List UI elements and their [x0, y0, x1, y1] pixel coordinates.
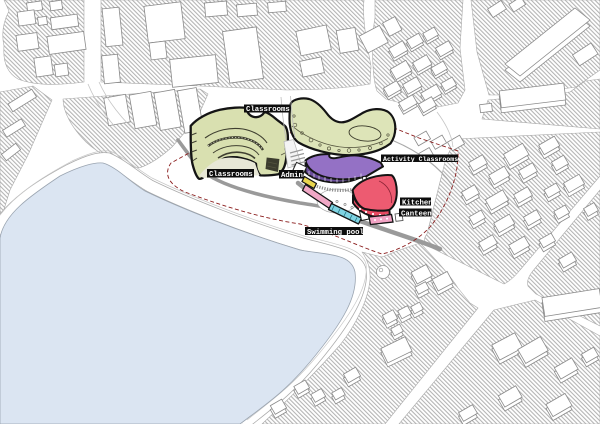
svg-text:Activity Classrooms: Activity Classrooms: [383, 156, 458, 163]
svg-text:Swimming pool: Swimming pool: [307, 229, 365, 237]
svg-text:Classrooms: Classrooms: [246, 106, 290, 114]
svg-text:Admin: Admin: [281, 172, 303, 180]
svg-text:Kitchen: Kitchen: [402, 199, 433, 207]
svg-text:Canteen: Canteen: [401, 210, 432, 218]
svg-text:Classrooms: Classrooms: [209, 171, 253, 179]
